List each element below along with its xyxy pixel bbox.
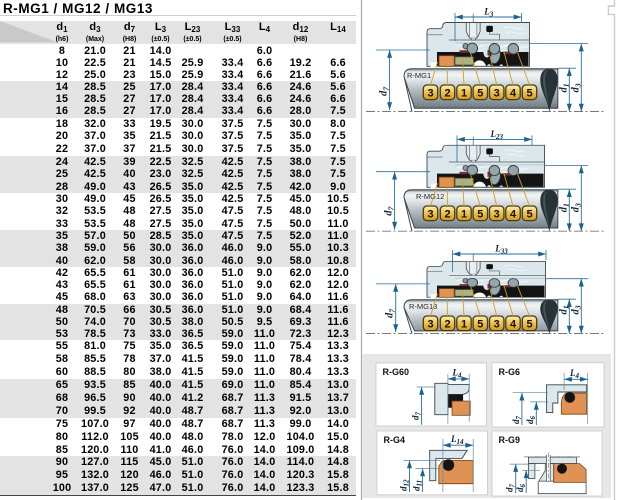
svg-text:3: 3 <box>494 209 500 221</box>
svg-text:d1: d1 <box>559 203 571 212</box>
svg-text:R-MG12: R-MG12 <box>416 192 444 201</box>
svg-text:d3: d3 <box>571 83 583 92</box>
svg-text:3: 3 <box>427 319 433 331</box>
svg-text:R-MG1: R-MG1 <box>407 71 431 80</box>
svg-text:1: 1 <box>461 209 467 221</box>
svg-text:d7: d7 <box>384 205 396 215</box>
svg-text:1: 1 <box>461 319 467 331</box>
svg-text:R-G4: R-G4 <box>384 435 406 445</box>
svg-text:3: 3 <box>427 88 433 100</box>
svg-text:2: 2 <box>444 88 450 100</box>
svg-text:3: 3 <box>494 319 500 331</box>
svg-text:5: 5 <box>526 209 532 221</box>
svg-text:4: 4 <box>510 209 517 221</box>
svg-text:1: 1 <box>461 88 467 100</box>
svg-text:d1: d1 <box>559 305 571 314</box>
svg-text:R-G9: R-G9 <box>499 435 521 445</box>
svg-text:5: 5 <box>526 319 532 331</box>
svg-text:2: 2 <box>444 209 450 221</box>
svg-text:d3: d3 <box>571 305 583 314</box>
svg-text:2: 2 <box>444 319 450 331</box>
svg-text:d7: d7 <box>385 308 397 318</box>
svg-text:4: 4 <box>510 88 517 100</box>
svg-text:5: 5 <box>477 209 483 221</box>
svg-text:R-G6: R-G6 <box>499 367 521 377</box>
svg-text:5: 5 <box>477 319 483 331</box>
svg-text:d1: d1 <box>559 83 571 92</box>
svg-text:R-G60: R-G60 <box>383 367 410 377</box>
svg-text:d7: d7 <box>379 86 391 96</box>
svg-text:5: 5 <box>477 88 483 100</box>
svg-text:d3: d3 <box>571 203 583 212</box>
svg-text:4: 4 <box>510 319 517 331</box>
svg-text:5: 5 <box>526 88 532 100</box>
svg-text:3: 3 <box>494 88 500 100</box>
svg-text:3: 3 <box>427 209 433 221</box>
